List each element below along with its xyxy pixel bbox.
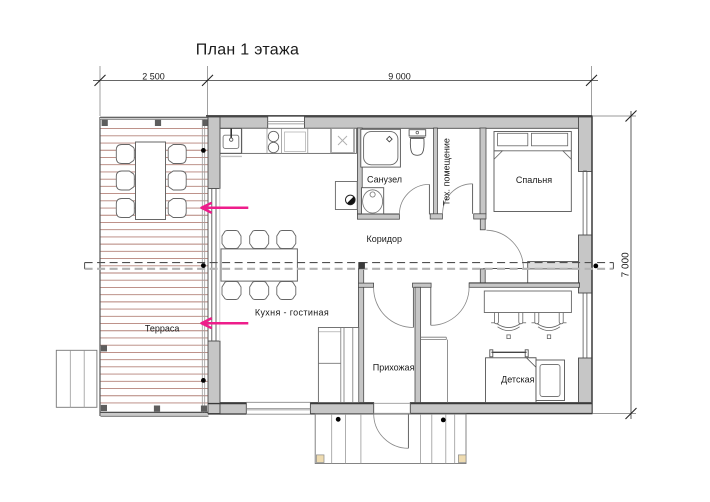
svg-text:Кухня - гостиная: Кухня - гостиная [255, 308, 329, 318]
svg-text:Тех. помещение: Тех. помещение [441, 138, 451, 206]
svg-text:9 000: 9 000 [388, 72, 411, 82]
svg-text:2 500: 2 500 [142, 72, 165, 82]
svg-text:Прихожая: Прихожая [373, 362, 415, 372]
svg-text:Спальня: Спальня [516, 175, 552, 185]
svg-text:Терраса: Терраса [145, 323, 180, 333]
svg-text:План 1 этажа: План 1 этажа [196, 42, 299, 59]
svg-text:Санузел: Санузел [367, 174, 402, 184]
svg-text:7 000: 7 000 [620, 252, 631, 277]
svg-text:Детская: Детская [501, 375, 534, 385]
svg-text:Коридор: Коридор [367, 234, 403, 244]
